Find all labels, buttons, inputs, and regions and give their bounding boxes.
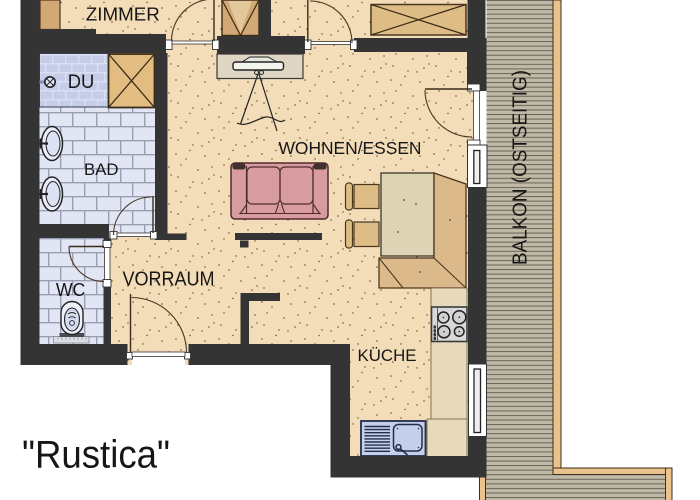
svg-text:VORRAUM: VORRAUM: [123, 269, 215, 291]
svg-text:ZIMMER: ZIMMER: [86, 3, 160, 24]
svg-text:WC: WC: [56, 280, 86, 300]
svg-text:"Rustica": "Rustica": [22, 434, 170, 477]
svg-text:WOHNEN/ESSEN: WOHNEN/ESSEN: [279, 138, 422, 158]
svg-text:BAD: BAD: [84, 160, 119, 179]
svg-text:KÜCHE: KÜCHE: [358, 347, 417, 365]
svg-text:BALKON (OSTSEITIG): BALKON (OSTSEITIG): [509, 70, 532, 265]
svg-text:DU: DU: [68, 72, 95, 93]
